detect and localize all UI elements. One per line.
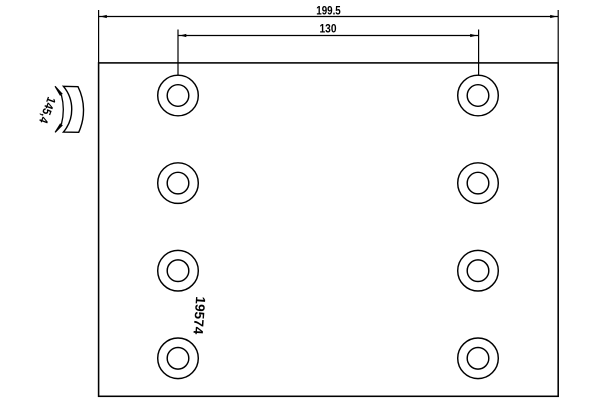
svg-text:19574: 19574	[190, 296, 208, 335]
svg-text:130: 130	[320, 24, 337, 36]
svg-text:199.5: 199.5	[316, 6, 341, 18]
svg-text:145,4: 145,4	[36, 95, 58, 125]
